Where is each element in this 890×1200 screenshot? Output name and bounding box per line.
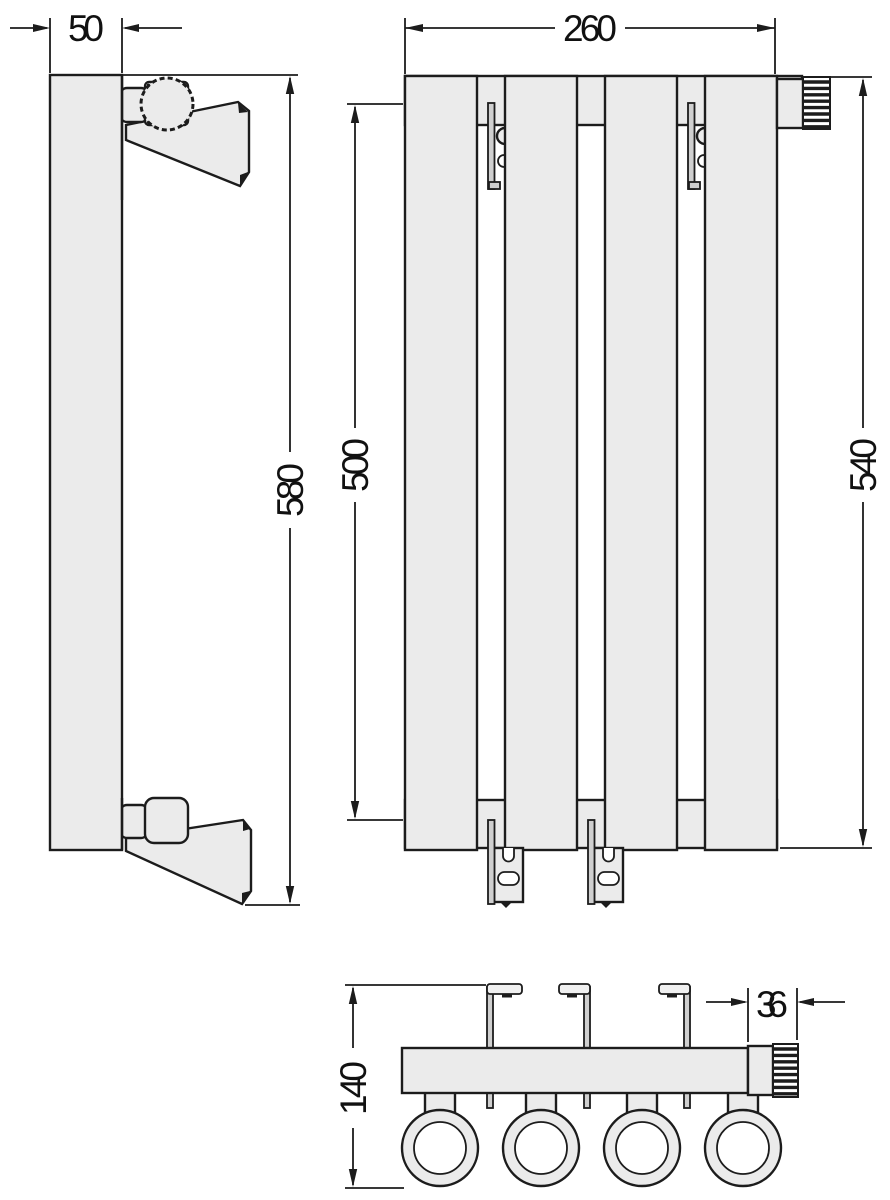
radiator-three-view-drawing: 50 580: [0, 0, 890, 1200]
tube-ring-1: [402, 1110, 478, 1186]
bracket-foot: [500, 902, 512, 908]
bracket-oval-slot: [498, 872, 519, 885]
dim-label-bracket-span: 500: [335, 438, 376, 492]
arrowhead-right: [757, 24, 775, 32]
arrowhead-up: [286, 76, 294, 94]
side-bottom-connector: [145, 798, 188, 843]
arrowhead-left: [405, 24, 423, 32]
dimension-bracket-span-500: 500: [335, 104, 403, 820]
arrowhead-left: [122, 24, 139, 32]
dim-label-depth: 50: [68, 8, 104, 49]
side-panel: [50, 75, 122, 850]
dimension-overall-height-580: 580: [122, 75, 311, 905]
bracket-oval-slot: [598, 872, 619, 885]
arrowhead-up: [859, 78, 867, 96]
arrowhead-down: [286, 886, 294, 904]
panel-4: [705, 76, 777, 850]
panel-3: [605, 76, 677, 850]
bottom-manifold-bar: [402, 1048, 748, 1093]
tube-ring-4: [705, 1110, 781, 1186]
panel-2: [505, 76, 577, 850]
side-valve-knurled-knob: [141, 78, 193, 130]
bracket-u-slot: [503, 848, 514, 862]
dim-label-width: 260: [563, 8, 617, 49]
arrowhead-right: [731, 998, 748, 1006]
dimension-valve-width-36: 36: [706, 984, 845, 1042]
arrowhead-left: [797, 998, 814, 1006]
dim-label-body-height: 540: [843, 438, 884, 492]
front-view: 260 500 540: [335, 8, 884, 908]
bottom-bracket-pin: [488, 820, 495, 904]
arrowhead-down: [859, 829, 867, 847]
arrowhead-right: [33, 24, 50, 32]
arrowhead-up: [349, 986, 357, 1004]
bracket-foot: [600, 902, 612, 908]
dimension-depth-50: 50: [10, 8, 182, 73]
tube-ring-2: [503, 1110, 579, 1186]
bottom-valve-body: [748, 1046, 773, 1095]
dimension-body-height-540: 540: [780, 77, 884, 848]
dim-label-valve-width: 36: [756, 984, 788, 1025]
dim-label-overall-height: 580: [270, 463, 311, 517]
tube-ring-3: [604, 1110, 680, 1186]
panel-1: [405, 76, 477, 850]
arrowhead-down: [351, 801, 359, 819]
front-valve-body: [777, 79, 803, 128]
bracket-u-slot: [603, 848, 614, 862]
bottom-bracket-pin: [588, 820, 595, 904]
side-view: 50 580: [10, 8, 311, 905]
arrowhead-down: [349, 1169, 357, 1187]
technical-drawing-page: 50 580: [0, 0, 890, 1200]
arrowhead-up: [351, 105, 359, 123]
dimension-width-260: 260: [405, 8, 775, 74]
dim-label-total-depth: 140: [333, 1061, 374, 1115]
bottom-view: 140 36: [333, 984, 845, 1188]
